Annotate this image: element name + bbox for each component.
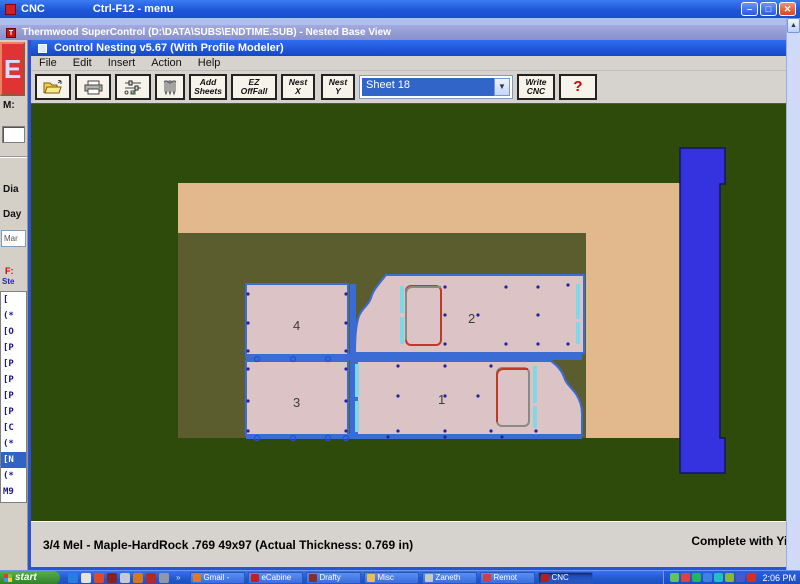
gcode-line[interactable]: [P — [1, 356, 26, 372]
firefox-icon — [193, 574, 201, 582]
system-tray: 2:06 PM — [663, 571, 800, 584]
task-cnc-active[interactable]: CNC — [538, 572, 593, 584]
horizontal-cut-line — [246, 354, 582, 360]
open-button[interactable] — [35, 74, 71, 100]
tray-icon-red[interactable] — [681, 573, 690, 582]
acrobat-icon[interactable] — [120, 573, 130, 583]
gcode-line[interactable]: M9 — [1, 484, 26, 500]
menu-file[interactable]: File — [31, 57, 65, 69]
cnc-app-icon — [5, 4, 16, 15]
print-button[interactable] — [75, 74, 111, 100]
part-label-3: 3 — [293, 395, 300, 410]
task-remote[interactable]: Remot — [480, 572, 535, 584]
f-label: F: — [5, 266, 14, 276]
gcode-line[interactable]: (* — [1, 468, 26, 484]
task-zaneth[interactable]: Zaneth — [422, 572, 477, 584]
task-misc[interactable]: Misc — [364, 572, 419, 584]
dropdown-arrow-icon[interactable]: ▼ — [494, 78, 510, 96]
gcode-line[interactable]: [C — [1, 420, 26, 436]
desktop: CNC Ctrl-F12 - menu – □ ✕ T Thermwood Su… — [0, 0, 800, 584]
taskbar: start » Gmail - eCabine Drafty — [0, 570, 800, 584]
gcode-line[interactable]: (* — [1, 308, 26, 324]
emergency-e-button[interactable]: E — [0, 42, 25, 96]
desktop-icon[interactable] — [81, 573, 91, 583]
supercontrol-title: Thermwood SuperControl (D:\DATA\SUBS\END… — [22, 27, 391, 38]
task-buttons: Gmail - eCabine Drafty Misc Zaneth Remot — [190, 572, 593, 584]
gcode-line[interactable]: [P — [1, 340, 26, 356]
supercontrol-titlebar[interactable]: T Thermwood SuperControl (D:\DATA\SUBS\E… — [0, 25, 786, 40]
close-button[interactable]: ✕ — [779, 2, 796, 16]
folder-icon[interactable] — [133, 573, 143, 583]
tray-icon-olive[interactable] — [725, 573, 734, 582]
sliders-icon — [123, 79, 143, 95]
gcode-line[interactable]: [P — [1, 388, 26, 404]
gcode-line[interactable]: [ — [1, 292, 26, 308]
drill-bits-icon — [162, 79, 178, 96]
sheet-select-value: Sheet 18 — [362, 78, 494, 96]
ez-offfall-button[interactable]: EZOffFall — [231, 74, 277, 100]
part-2-cutout[interactable] — [406, 286, 441, 345]
outer-titlebar: CNC Ctrl-F12 - menu – □ ✕ — [0, 0, 800, 18]
material-status: 3/4 Mel - Maple-HardRock .769 49x97 (Act… — [43, 538, 413, 552]
m-label: M: — [3, 100, 15, 111]
gcode-line[interactable]: [P — [1, 372, 26, 388]
tray-icon-green[interactable] — [692, 573, 701, 582]
gcode-line-selected[interactable]: [N — [1, 452, 26, 468]
help-button[interactable]: ? — [559, 74, 597, 100]
nest-x-button[interactable]: NestX — [281, 74, 315, 100]
remote-icon — [483, 574, 491, 582]
supercontrol-side-panel: E M: Dia Day Mar F: Ste [ (* [O [P [P [P… — [0, 40, 28, 570]
settings-button[interactable] — [115, 74, 151, 100]
task-gmail[interactable]: Gmail - — [190, 572, 245, 584]
clock: 2:06 PM — [762, 573, 796, 583]
draft-icon — [309, 574, 317, 582]
part-label-4: 4 — [293, 318, 300, 333]
outer-subtitle: Ctrl-F12 - menu — [93, 3, 174, 15]
part-label-1: 1 — [438, 392, 445, 407]
dia-label: Dia — [3, 184, 19, 195]
document-icon — [425, 574, 433, 582]
folder-icon — [367, 574, 375, 582]
left-input-field[interactable] — [2, 126, 25, 143]
nesting-window-icon — [38, 44, 47, 53]
menu-help[interactable]: Help — [190, 57, 229, 69]
part-1-cutout[interactable] — [497, 368, 529, 426]
write-cnc-button[interactable]: WriteCNC — [517, 74, 555, 100]
app-icon[interactable] — [107, 573, 117, 583]
nest-part-1[interactable] — [357, 361, 582, 435]
gcode-listbox[interactable]: [ (* [O [P [P [P [P [P [C (* [N (* M9 — [0, 291, 27, 503]
start-button[interactable]: start — [0, 571, 60, 584]
quicklaunch-chevron-icon[interactable]: » — [176, 573, 180, 582]
windows-flag-icon — [4, 574, 12, 582]
toolbar: AddSheets EZOffFall NestX NestY Sheet 18… — [31, 71, 786, 103]
part-label-2: 2 — [468, 311, 475, 326]
menu-edit[interactable]: Edit — [65, 57, 100, 69]
gcode-line[interactable]: [P — [1, 404, 26, 420]
open-folder-icon — [43, 80, 63, 95]
day-label: Day — [3, 209, 21, 220]
gcode-line[interactable]: (* — [1, 436, 26, 452]
ie-icon[interactable] — [68, 573, 78, 583]
quick-launch: » — [68, 573, 180, 583]
task-drafty[interactable]: Drafty — [306, 572, 361, 584]
firefox-icon[interactable] — [94, 573, 104, 583]
sheet-select-dropdown[interactable]: Sheet 18 ▼ — [359, 75, 513, 99]
left-combo[interactable]: Mar — [1, 230, 26, 247]
scrollbar-up-icon[interactable]: ▲ — [787, 18, 800, 33]
nest-view-canvas[interactable]: 4 3 2 1 — [31, 103, 786, 521]
control-nesting-window: Control Nesting v5.67 (With Profile Mode… — [28, 40, 786, 570]
maximize-button[interactable]: □ — [760, 2, 777, 16]
nest-y-button[interactable]: NestY — [321, 74, 355, 100]
nesting-title: Control Nesting v5.67 (With Profile Mode… — [54, 42, 284, 54]
cnc-icon — [541, 574, 549, 582]
machine-rail[interactable] — [680, 148, 725, 473]
vertical-scrollbar[interactable]: ▲ — [786, 18, 800, 570]
nesting-titlebar[interactable]: Control Nesting v5.67 (With Profile Mode… — [31, 40, 786, 56]
menu-insert[interactable]: Insert — [100, 57, 144, 69]
tray-icon-blue[interactable] — [703, 573, 712, 582]
add-sheets-button[interactable]: AddSheets — [189, 74, 227, 100]
question-icon: ? — [573, 79, 582, 96]
media-icon[interactable] — [146, 573, 156, 583]
menu-action[interactable]: Action — [143, 57, 190, 69]
tool-icon[interactable] — [159, 573, 169, 583]
printer-icon — [84, 80, 103, 95]
step-label: Ste — [2, 277, 14, 286]
tray-icon-alert[interactable] — [747, 573, 756, 582]
thermwood-icon: T — [6, 28, 16, 38]
ecabinet-icon — [251, 574, 259, 582]
tools-button[interactable] — [155, 74, 185, 100]
outer-title: CNC — [21, 3, 45, 15]
tray-icon-antivirus[interactable] — [670, 573, 679, 582]
menubar: File Edit Insert Action Help — [31, 56, 786, 71]
tray-icon-teal[interactable] — [714, 573, 723, 582]
completion-status: Complete with Yie — [691, 534, 786, 548]
tray-icon-indigo[interactable] — [736, 573, 745, 582]
status-bar: 3/4 Mel - Maple-HardRock .769 49x97 (Act… — [31, 521, 786, 567]
task-ecabinet[interactable]: eCabine — [248, 572, 303, 584]
gcode-line[interactable]: [O — [1, 324, 26, 340]
minimize-button[interactable]: – — [741, 2, 758, 16]
